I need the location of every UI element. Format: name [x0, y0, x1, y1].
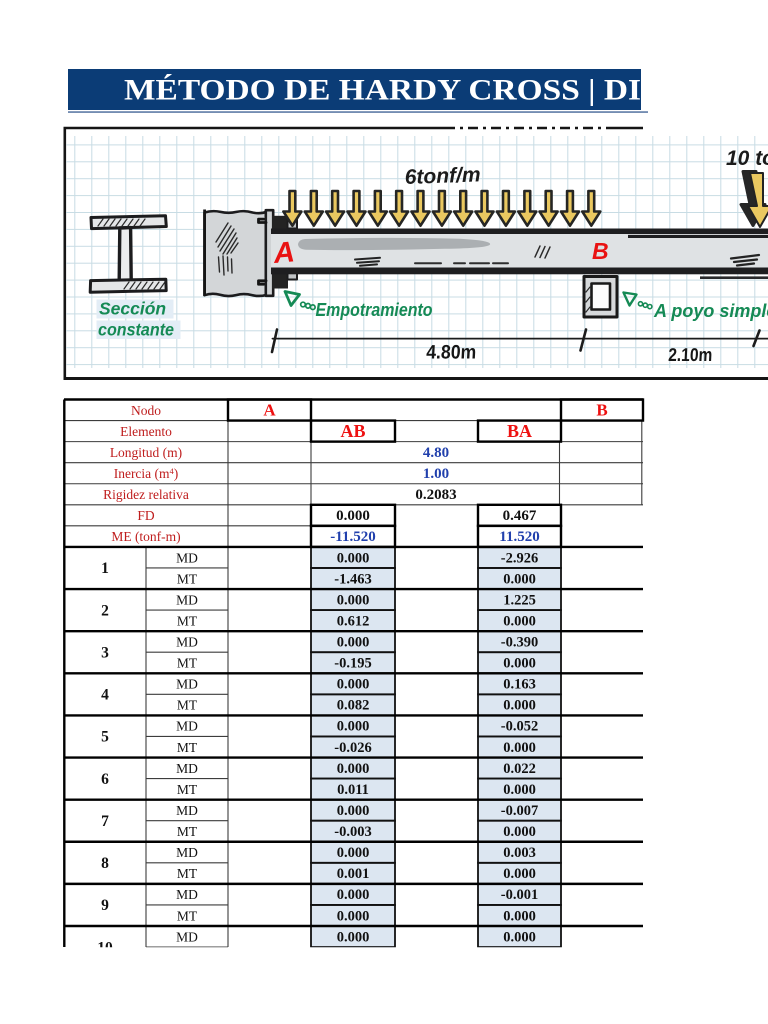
svg-text:MD: MD — [176, 761, 198, 776]
svg-text:0.000: 0.000 — [337, 803, 370, 819]
svg-text:A poyo simple: A poyo simple — [653, 301, 768, 321]
svg-text:-0.195: -0.195 — [334, 656, 371, 672]
svg-text:A: A — [263, 400, 276, 419]
svg-text:MT: MT — [177, 571, 198, 586]
svg-text:-0.007: -0.007 — [501, 803, 538, 819]
svg-text:FD: FD — [137, 508, 155, 523]
svg-text:10: 10 — [97, 939, 113, 956]
svg-text:MT: MT — [177, 866, 198, 881]
svg-text:MD: MD — [176, 803, 198, 818]
svg-text:0.000: 0.000 — [503, 740, 536, 756]
svg-text:0.000: 0.000 — [337, 845, 370, 861]
svg-text:-0.003: -0.003 — [334, 824, 371, 840]
svg-text:0.163: 0.163 — [503, 677, 536, 693]
svg-text:0.2083: 0.2083 — [415, 487, 456, 503]
svg-text:MT: MT — [177, 908, 198, 923]
svg-text:6tonf/m: 6tonf/m — [404, 163, 481, 189]
svg-text:Inercia (m4): Inercia (m4) — [114, 466, 179, 481]
svg-text:B: B — [596, 400, 607, 419]
svg-text:constante: constante — [98, 320, 174, 340]
svg-text:0.000: 0.000 — [337, 761, 370, 777]
svg-text:ME (tonf-m): ME (tonf-m) — [111, 529, 180, 544]
svg-text:Rigidez relativa: Rigidez relativa — [103, 487, 189, 502]
svg-text:MD: MD — [176, 592, 198, 607]
svg-text:0.000: 0.000 — [503, 613, 536, 629]
svg-text:Nodo: Nodo — [131, 403, 161, 418]
svg-text:MÉTODO DE HARDY CROSS | DI: MÉTODO DE HARDY CROSS | DI — [124, 74, 641, 107]
svg-text:7: 7 — [101, 813, 109, 830]
svg-text:0.000: 0.000 — [337, 677, 370, 693]
svg-text:-11.520: -11.520 — [330, 529, 375, 545]
svg-text:-0.052: -0.052 — [501, 719, 538, 735]
svg-text:6: 6 — [101, 771, 109, 788]
svg-text:0.000: 0.000 — [503, 929, 536, 945]
svg-text:B: B — [592, 238, 609, 264]
svg-text:MT: MT — [177, 824, 198, 839]
svg-text:0.000: 0.000 — [503, 656, 536, 672]
svg-text:Sección: Sección — [99, 299, 166, 319]
svg-text:Elemento: Elemento — [120, 424, 172, 439]
svg-text:MD: MD — [176, 719, 198, 734]
svg-text:0.000: 0.000 — [503, 866, 536, 882]
svg-text:4: 4 — [101, 687, 109, 704]
svg-text:0.000: 0.000 — [503, 571, 536, 587]
svg-text:-2.926: -2.926 — [501, 550, 538, 566]
svg-text:-0.026: -0.026 — [334, 740, 371, 756]
svg-text:-0.390: -0.390 — [501, 634, 538, 650]
svg-text:0.467: 0.467 — [503, 508, 537, 524]
svg-text:MT: MT — [177, 740, 198, 755]
svg-text:0.000: 0.000 — [503, 908, 536, 924]
svg-text:1: 1 — [101, 560, 109, 577]
svg-text:MD: MD — [176, 887, 198, 902]
svg-text:MT: MT — [177, 613, 198, 628]
svg-text:3: 3 — [101, 644, 109, 661]
svg-text:2: 2 — [101, 602, 109, 619]
svg-text:4.80: 4.80 — [423, 445, 449, 461]
svg-text:8: 8 — [101, 855, 109, 872]
svg-text:9: 9 — [101, 897, 109, 914]
svg-text:11.520: 11.520 — [499, 529, 539, 545]
svg-text:0.000: 0.000 — [337, 908, 370, 924]
svg-text:0.001: 0.001 — [337, 866, 370, 882]
svg-text:1.225: 1.225 — [503, 592, 536, 608]
svg-text:0.000: 0.000 — [337, 719, 370, 735]
svg-text:AB: AB — [340, 421, 365, 441]
svg-text:0.612: 0.612 — [337, 613, 370, 629]
svg-text:MD: MD — [176, 550, 198, 565]
svg-text:0.000: 0.000 — [337, 887, 370, 903]
svg-text:0.000: 0.000 — [337, 592, 370, 608]
svg-text:0.003: 0.003 — [503, 845, 536, 861]
svg-text:10 ton: 10 ton — [726, 147, 768, 170]
svg-text:BA: BA — [507, 421, 532, 441]
svg-text:2.10m: 2.10m — [668, 344, 713, 365]
svg-text:0.000: 0.000 — [503, 782, 536, 798]
svg-text:MD: MD — [176, 677, 198, 692]
svg-text:Empotramiento: Empotramiento — [316, 300, 433, 320]
svg-text:0.000: 0.000 — [337, 929, 370, 945]
svg-text:0.082: 0.082 — [337, 698, 370, 714]
svg-text:0.011: 0.011 — [337, 782, 369, 798]
svg-text:MD: MD — [176, 929, 198, 944]
svg-text:0.022: 0.022 — [503, 761, 536, 777]
svg-text:MT: MT — [177, 698, 198, 713]
svg-text:0.000: 0.000 — [336, 508, 370, 524]
svg-text:5: 5 — [101, 729, 109, 746]
svg-text:MT: MT — [177, 782, 198, 797]
svg-text:Longitud (m): Longitud (m) — [110, 445, 182, 460]
svg-text:0.000: 0.000 — [503, 824, 536, 840]
svg-text:MD: MD — [176, 634, 198, 649]
svg-text:MT: MT — [177, 656, 198, 671]
svg-text:0.000: 0.000 — [337, 634, 370, 650]
svg-text:A: A — [271, 236, 296, 270]
svg-text:0.000: 0.000 — [503, 698, 536, 714]
svg-text:-0.001: -0.001 — [501, 887, 538, 903]
svg-text:0.000: 0.000 — [337, 550, 370, 566]
svg-text:-1.463: -1.463 — [334, 571, 371, 587]
svg-text:4.80m: 4.80m — [426, 342, 477, 364]
svg-text:MD: MD — [176, 845, 198, 860]
svg-text:1.00: 1.00 — [423, 466, 449, 482]
